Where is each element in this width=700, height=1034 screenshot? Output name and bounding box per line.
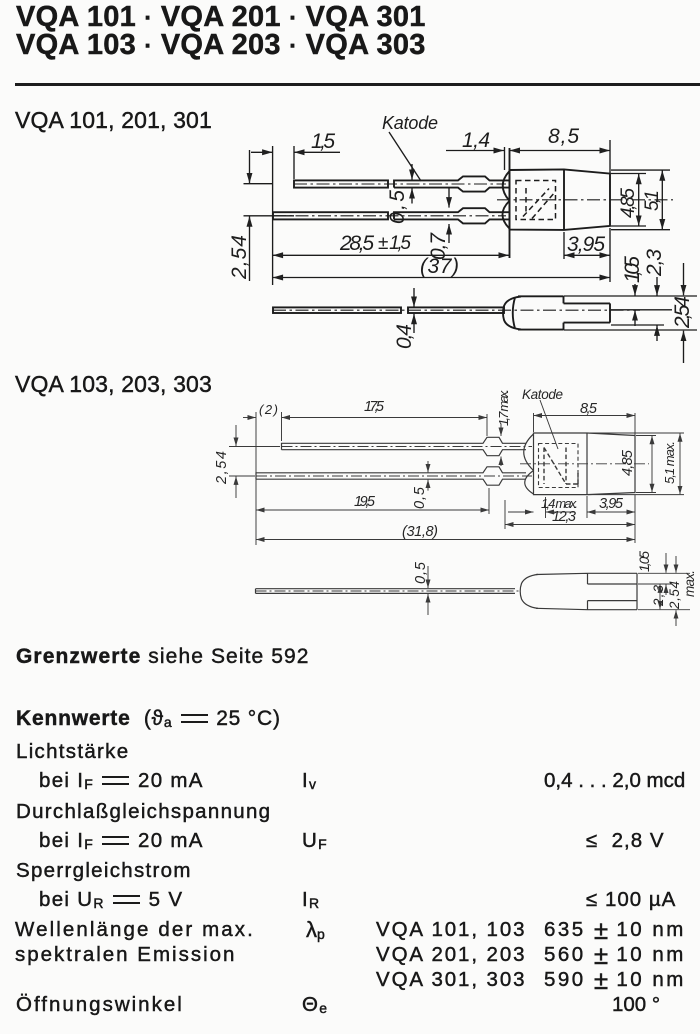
svg-text:3,95: 3,95: [567, 233, 605, 256]
svg-text:2,3: 2,3: [643, 249, 666, 277]
svg-text:19,5: 19,5: [354, 494, 376, 510]
svg-text:17,5: 17,5: [364, 399, 385, 415]
svg-text:1,5: 1,5: [311, 130, 335, 153]
svg-text:28,5: 28,5: [339, 232, 374, 255]
svg-text:1,4: 1,4: [462, 129, 490, 152]
svg-text:3,95: 3,95: [599, 496, 624, 512]
svg-text:0,5: 0,5: [412, 486, 428, 509]
svg-text:2,54: 2,54: [214, 451, 230, 485]
svg-text:0,5: 0,5: [413, 561, 429, 584]
svg-text:2,54: 2,54: [671, 296, 694, 329]
svg-text:± 1,5: ± 1,5: [378, 233, 411, 254]
svg-text:1,05: 1,05: [637, 551, 652, 572]
svg-text:8,5: 8,5: [548, 125, 579, 148]
svg-text:8,5: 8,5: [580, 401, 598, 417]
svg-text:0,4: 0,4: [393, 324, 416, 349]
svg-text:4,85: 4,85: [620, 449, 636, 476]
svg-text:2,3: 2,3: [651, 585, 666, 607]
svg-text:(31,8): (31,8): [402, 524, 438, 540]
svg-text:5,1: 5,1: [642, 190, 663, 211]
svg-text:Katode: Katode: [382, 113, 438, 133]
svg-text:4,85: 4,85: [618, 188, 639, 218]
svg-text:1,7 max.: 1,7 max.: [496, 389, 511, 426]
svg-text:0,7: 0,7: [427, 232, 450, 260]
svg-text:(2): (2): [259, 402, 278, 417]
svg-text:5,1 max.: 5,1 max.: [662, 441, 677, 484]
svg-text:max.: max.: [682, 570, 697, 597]
svg-text:0,5: 0,5: [386, 190, 409, 224]
svg-text:12,3: 12,3: [552, 509, 576, 525]
svg-text:Katode: Katode: [522, 387, 563, 402]
svg-text:1,05: 1,05: [621, 256, 644, 283]
svg-text:2,54: 2,54: [667, 581, 682, 610]
svg-text:2,54: 2,54: [228, 235, 251, 280]
